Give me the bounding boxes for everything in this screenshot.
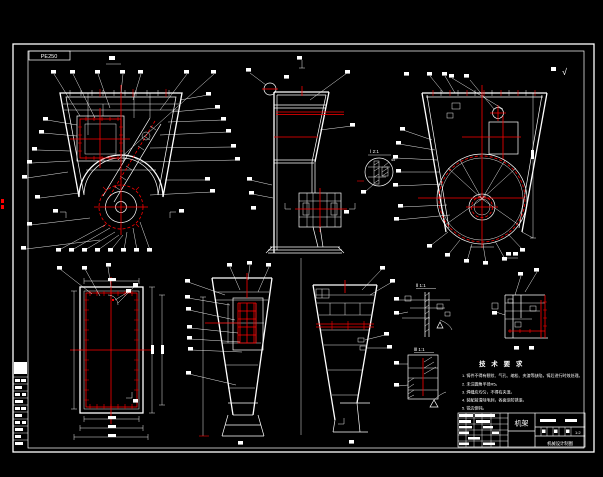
section-detail xyxy=(492,268,548,350)
tech-notes: 技 术 要 求 1. 铸件不得有裂纹、气孔、缩松、夹渣等缺陷，铸后进行时效处理。… xyxy=(462,359,582,411)
detail-e-label: Ⅲ 1:1 xyxy=(414,347,425,352)
front-view xyxy=(21,56,240,252)
detail-b-label: Ⅰ 2:1 xyxy=(370,149,379,154)
note-1: 1. 铸件不得有裂纹、气孔、缩松、夹渣等缺陷，铸后进行时效处理。 xyxy=(462,372,582,378)
cover-plate-view xyxy=(57,263,165,440)
right-trapezoid-view xyxy=(313,266,395,444)
detail-d-label: Ⅱ 1:1 xyxy=(416,283,426,288)
note-4: 4. 装配前清除毛刺，各面涂防锈漆。 xyxy=(462,397,526,403)
detail-circle-b: Ⅰ 2:1 45° xyxy=(357,149,397,194)
note-2: 2. 未注圆角半径R5。 xyxy=(462,381,500,387)
title-block: 机架 1:2 机械设计制图 xyxy=(458,413,585,447)
title-block-footer: 机械设计制图 xyxy=(547,440,573,447)
cad-drawing-canvas: PE250 √ xyxy=(0,0,603,477)
angle-note: 45° xyxy=(391,158,397,162)
revision-strip xyxy=(13,362,28,445)
left-trapezoid-view xyxy=(185,261,272,445)
part-name: 机架 xyxy=(515,419,529,428)
note-5: 5. 锐边倒钝。 xyxy=(462,405,486,411)
tech-notes-title: 技 术 要 求 xyxy=(479,359,524,368)
scale-value: 1:2 xyxy=(575,430,581,435)
roughness-check-icon: √ xyxy=(562,67,567,77)
surface-finish-mark: √ xyxy=(551,67,567,77)
back-view xyxy=(393,72,547,265)
note-3: 3. 焊缝应均匀，不得有夹渣。 xyxy=(462,389,514,395)
weld-detail-2: Ⅲ 1:1 xyxy=(394,347,446,407)
weld-detail-1: Ⅱ 1:1 xyxy=(394,283,452,337)
drawing-code: PE250 xyxy=(41,54,58,60)
side-view xyxy=(246,56,355,435)
